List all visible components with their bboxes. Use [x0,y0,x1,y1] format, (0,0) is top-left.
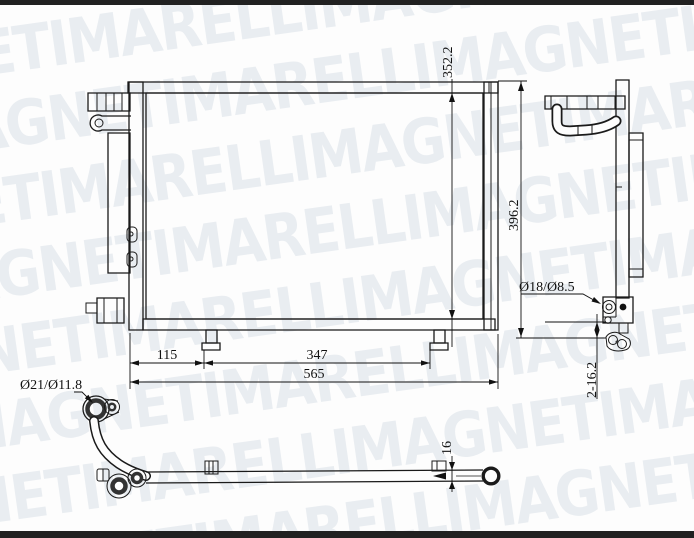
dim-flange-diameters: Ø21/Ø11.8 [20,378,82,393]
dim-left-offset: 115 [157,348,177,363]
receiver-drier [108,133,137,273]
pipe-clip-right [432,461,446,471]
dim-total-width: 565 [304,367,325,382]
bottom-frame-bar [0,531,694,538]
side-profile-plate [616,80,629,298]
dim-bracket-depth: 2-16.2 [585,362,600,398]
dim-core-height: 352.2 [441,47,456,79]
outlet-fitting [86,298,124,323]
condenser-core [146,93,483,319]
condenser-technical-drawing: 352.2 396.2 115 347 565 Ø18 [0,0,694,538]
dim-port-diameters: Ø18/Ø8.5 [519,280,575,295]
dim-total-height: 396.2 [507,200,522,232]
top-frame-bar [0,0,694,5]
dim-pipe-diameter: 16 [440,441,455,455]
bottom-header-tank [143,319,495,330]
inlet-fitting [88,93,131,131]
drawing-page: MAGNETIMARELLIMAGNETIMARELLIMAGNETI MARE… [0,0,694,538]
side-receiver-drier [629,133,643,277]
mounting-pin-right [430,330,448,350]
condenser-side-view [545,80,643,351]
dim-pin-spacing: 347 [307,348,328,363]
left-side-plate [129,82,143,330]
condenser-front-view [86,82,498,350]
side-bottom-clip [606,332,630,351]
mounting-pin-left [202,330,220,350]
pipe-end-ring [483,468,499,484]
top-header-tank [128,82,498,93]
long-pipe [146,470,483,483]
pipe-assembly-bottom-view [83,396,499,498]
side-port-block [603,297,634,333]
